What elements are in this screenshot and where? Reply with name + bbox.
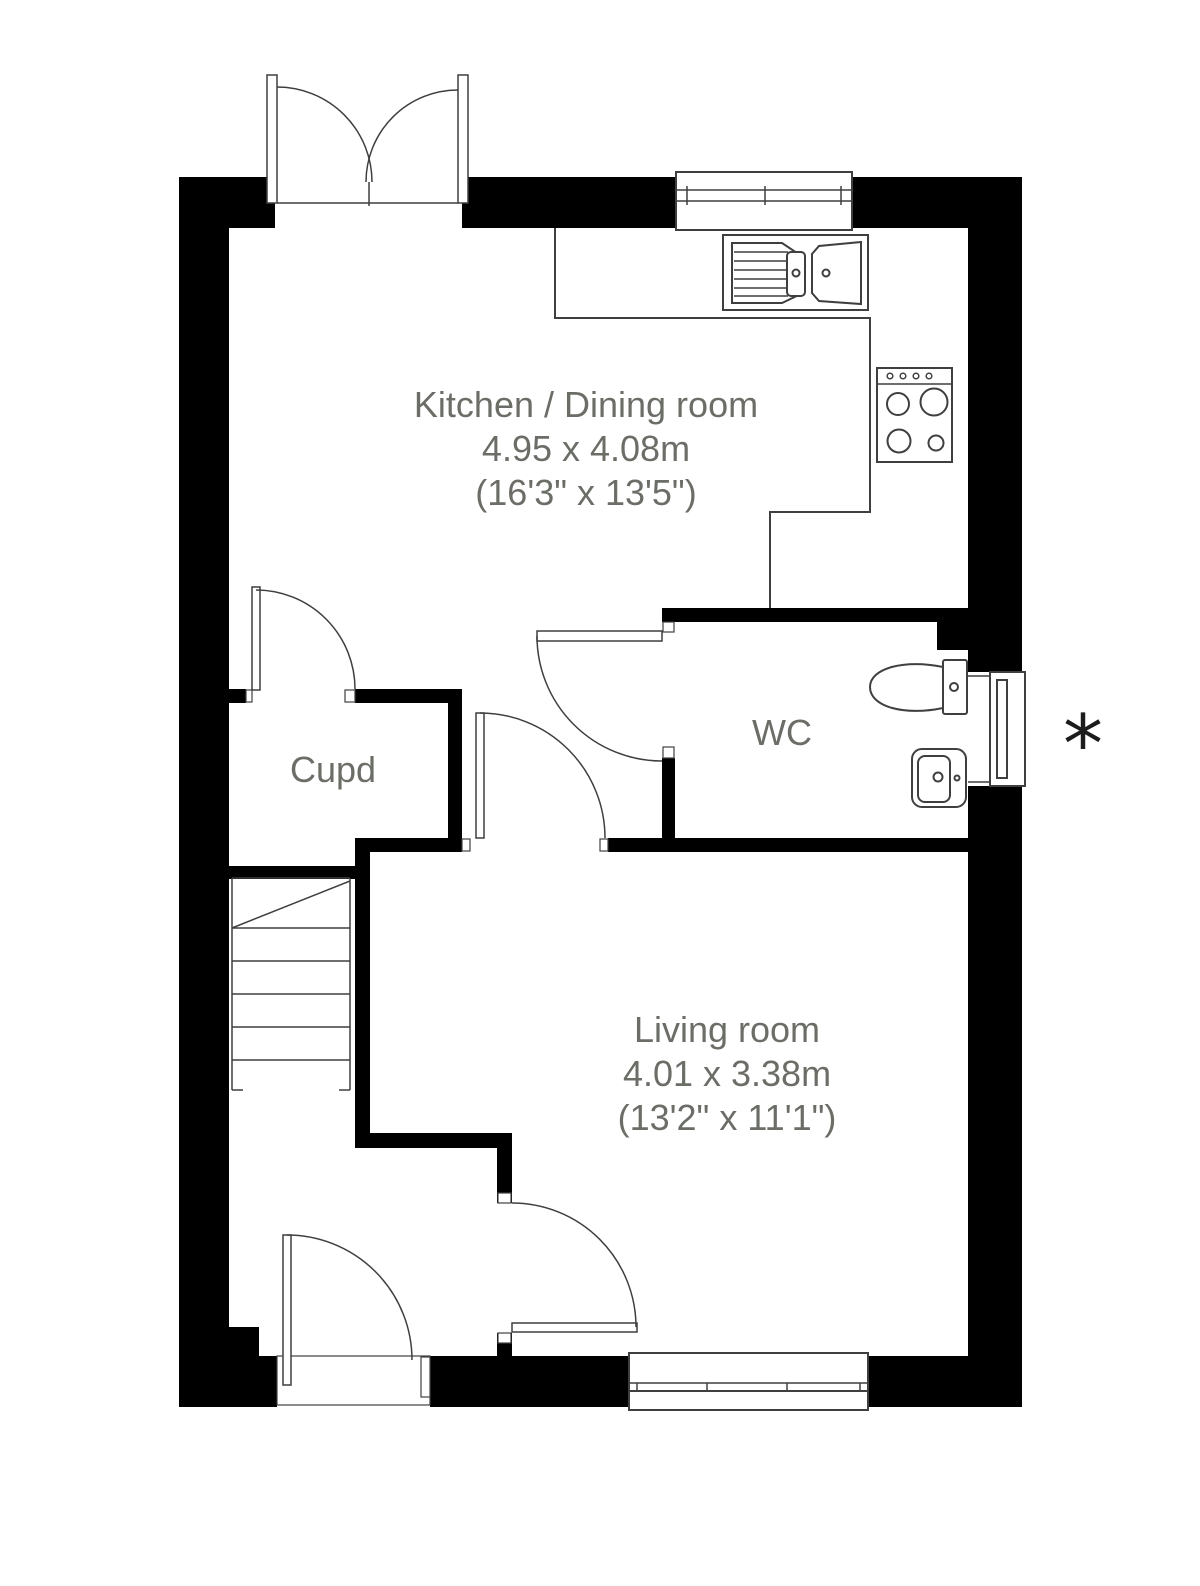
wall-cupd-top-stub bbox=[228, 689, 246, 703]
living-room-name: Living room bbox=[618, 1008, 837, 1052]
sink-tap-hole-left bbox=[793, 270, 800, 277]
toilet-flush-button bbox=[950, 683, 958, 691]
kitchen-living-door-icon bbox=[476, 713, 605, 838]
wall-entry-step bbox=[229, 1327, 259, 1356]
sink-bowl bbox=[812, 242, 861, 304]
wall-hall-top bbox=[228, 866, 355, 879]
wall-cupd-top bbox=[355, 689, 462, 703]
wall-left bbox=[179, 177, 229, 1407]
hob-icon bbox=[877, 368, 952, 462]
hall-living-door-swing bbox=[512, 1203, 636, 1327]
french-door-right-swing bbox=[366, 90, 458, 182]
wc-door-swing bbox=[537, 636, 662, 761]
living-window-sill bbox=[629, 1391, 868, 1410]
kitchen-living-door-swing bbox=[480, 713, 605, 838]
cupboard-door-icon bbox=[252, 587, 355, 690]
living-room-dim-m: 4.01 x 3.38m bbox=[618, 1052, 837, 1096]
front-door-icon bbox=[277, 1235, 430, 1405]
cupboard-label: Cupd bbox=[290, 748, 376, 792]
kitchen-living-door-leaf bbox=[476, 713, 484, 838]
wall-cupd-right bbox=[448, 703, 462, 838]
living-room-dim-ft: (13'2" x 11'1") bbox=[618, 1096, 837, 1140]
french-door-left-leaf bbox=[267, 75, 277, 203]
basin-tap-hole bbox=[934, 773, 943, 782]
french-door-left-swing bbox=[277, 87, 372, 182]
basin-overflow bbox=[955, 776, 960, 781]
floor-plan-svg bbox=[0, 0, 1200, 1586]
wc-name: WC bbox=[752, 711, 812, 755]
wall-openings bbox=[275, 172, 1022, 1412]
kitchen-window-icon bbox=[676, 172, 852, 230]
living-room-label: Living room 4.01 x 3.38m (13'2" x 11'1") bbox=[618, 1008, 837, 1140]
front-door-leaf bbox=[283, 1235, 291, 1385]
wall-stairs-side bbox=[355, 838, 370, 1148]
sink-icon bbox=[723, 235, 868, 310]
staircase-icon bbox=[232, 878, 350, 1090]
toilet-bowl bbox=[870, 664, 943, 711]
cupboard-door-leaf bbox=[252, 587, 260, 690]
sink-tap-hole-right bbox=[823, 270, 830, 277]
wc-door-leaf bbox=[537, 631, 662, 641]
kitchen-dim-ft: (16'3" x 13'5") bbox=[414, 471, 758, 515]
exterior-walls bbox=[179, 177, 1022, 1407]
wall-cupd-bottom bbox=[355, 838, 462, 852]
kitchen-dim-m: 4.95 x 4.08m bbox=[414, 427, 758, 471]
cupboard-door-swing bbox=[256, 590, 355, 689]
wall-wc-top-block bbox=[937, 608, 968, 650]
stairs-break-line bbox=[232, 881, 350, 928]
wall-right bbox=[968, 177, 1022, 1407]
living-window-icon bbox=[629, 1353, 868, 1410]
interior-walls bbox=[228, 608, 968, 1356]
asterisk-note: * bbox=[1063, 705, 1103, 785]
cupboard-name: Cupd bbox=[290, 748, 376, 792]
basin-icon bbox=[912, 749, 966, 807]
wall-hall-living-h bbox=[355, 1133, 512, 1148]
wc-door-icon bbox=[537, 631, 662, 761]
kitchen-name: Kitchen / Dining room bbox=[414, 383, 758, 427]
wall-wc-bottom bbox=[608, 838, 968, 852]
toilet-icon bbox=[870, 660, 967, 714]
kitchen-label: Kitchen / Dining room 4.95 x 4.08m (16'3… bbox=[414, 383, 758, 515]
wall-wc-top bbox=[662, 608, 937, 622]
wc-label: WC bbox=[752, 711, 812, 755]
floor-plan: Kitchen / Dining room 4.95 x 4.08m (16'3… bbox=[0, 0, 1200, 1586]
front-door-swing bbox=[287, 1235, 412, 1360]
french-door-right-leaf bbox=[458, 75, 468, 203]
hall-living-door-icon bbox=[512, 1203, 637, 1332]
wall-wc-left bbox=[662, 758, 675, 852]
hall-living-door-leaf bbox=[512, 1323, 637, 1332]
